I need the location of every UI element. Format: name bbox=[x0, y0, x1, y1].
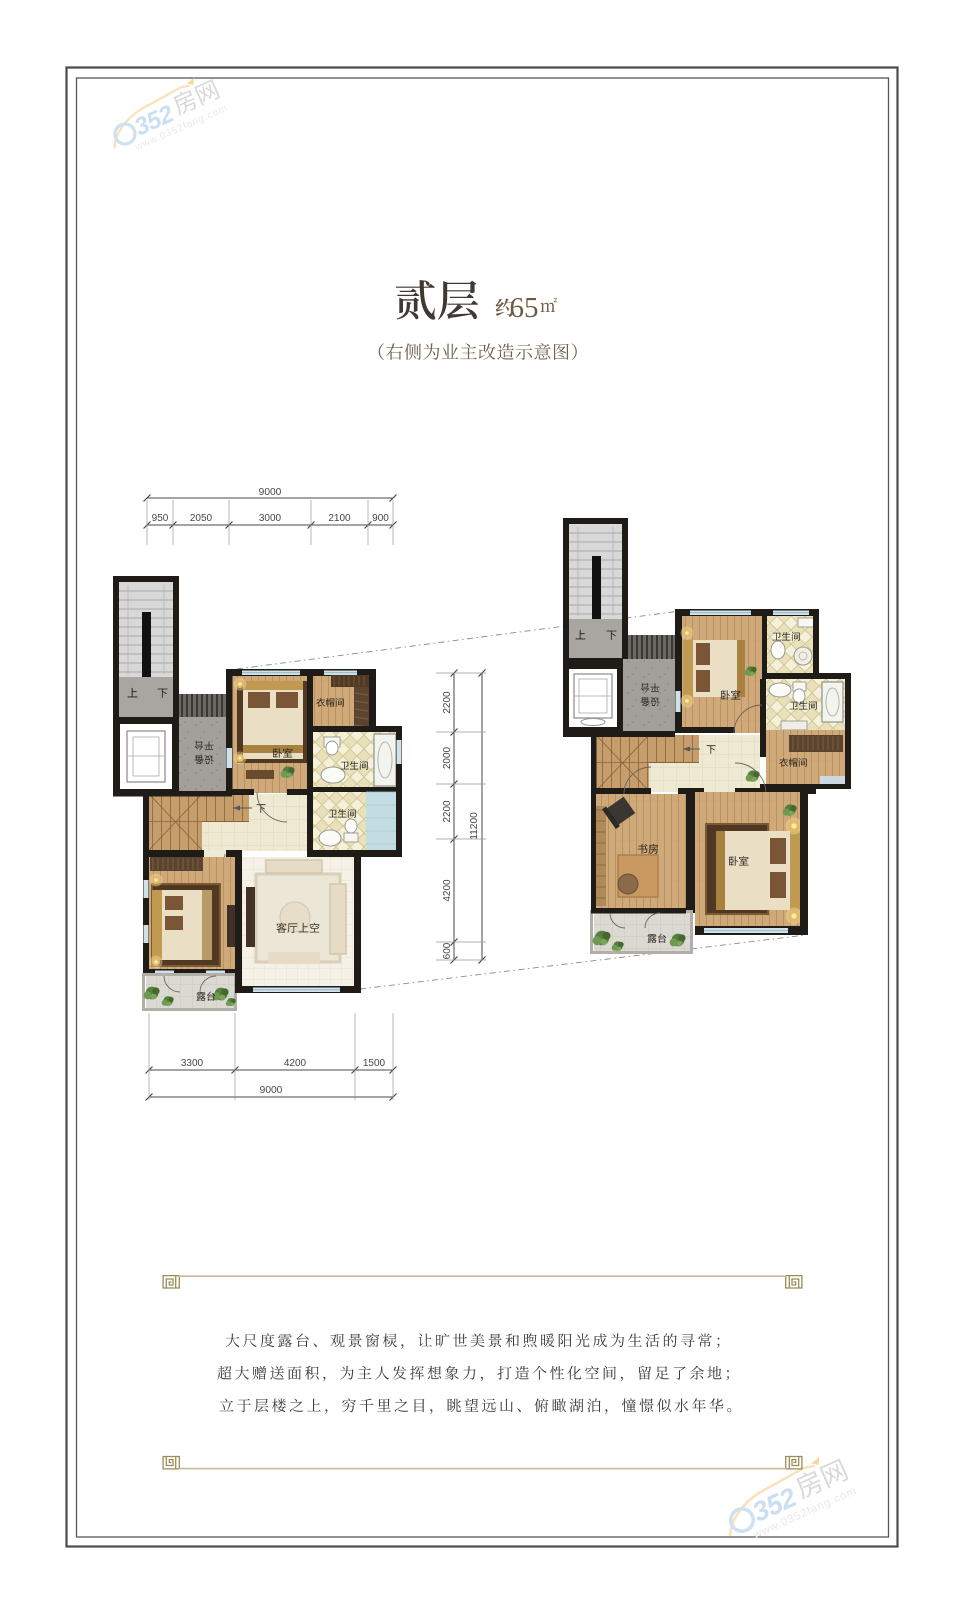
svg-text:11200: 11200 bbox=[469, 812, 480, 840]
svg-text:950: 950 bbox=[152, 513, 169, 524]
svg-text:9000: 9000 bbox=[259, 487, 282, 498]
svg-text:3300: 3300 bbox=[181, 1058, 204, 1069]
svg-text:900: 900 bbox=[372, 513, 389, 524]
svg-text:3000: 3000 bbox=[259, 513, 282, 524]
svg-text:2100: 2100 bbox=[328, 513, 351, 524]
svg-text:1500: 1500 bbox=[363, 1058, 386, 1069]
svg-text:2200: 2200 bbox=[442, 800, 453, 823]
svg-text:2050: 2050 bbox=[190, 513, 213, 524]
svg-text:65: 65 bbox=[510, 292, 539, 324]
svg-text:2200: 2200 bbox=[442, 691, 453, 714]
svg-text:4200: 4200 bbox=[442, 879, 453, 902]
svg-text:600: 600 bbox=[442, 942, 453, 959]
svg-text:4200: 4200 bbox=[284, 1058, 307, 1069]
svg-text:9000: 9000 bbox=[260, 1085, 283, 1096]
svg-text:2000: 2000 bbox=[442, 746, 453, 769]
